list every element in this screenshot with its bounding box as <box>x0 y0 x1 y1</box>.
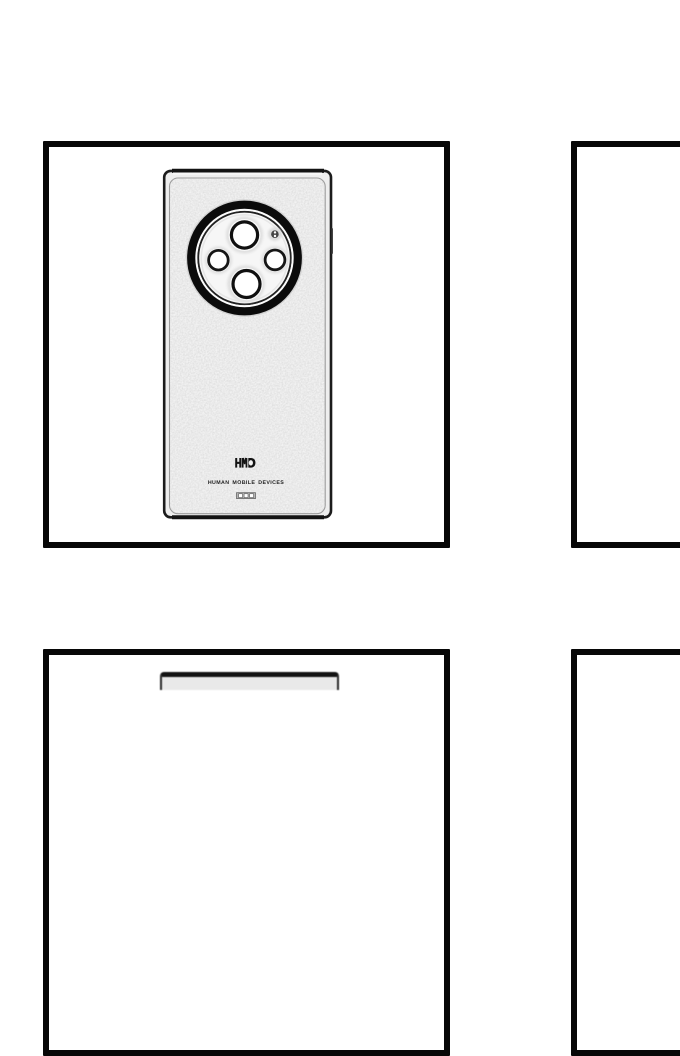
svg-text:HUMAN MOBILE DEVICES: HUMAN MOBILE DEVICES <box>207 480 283 486</box>
